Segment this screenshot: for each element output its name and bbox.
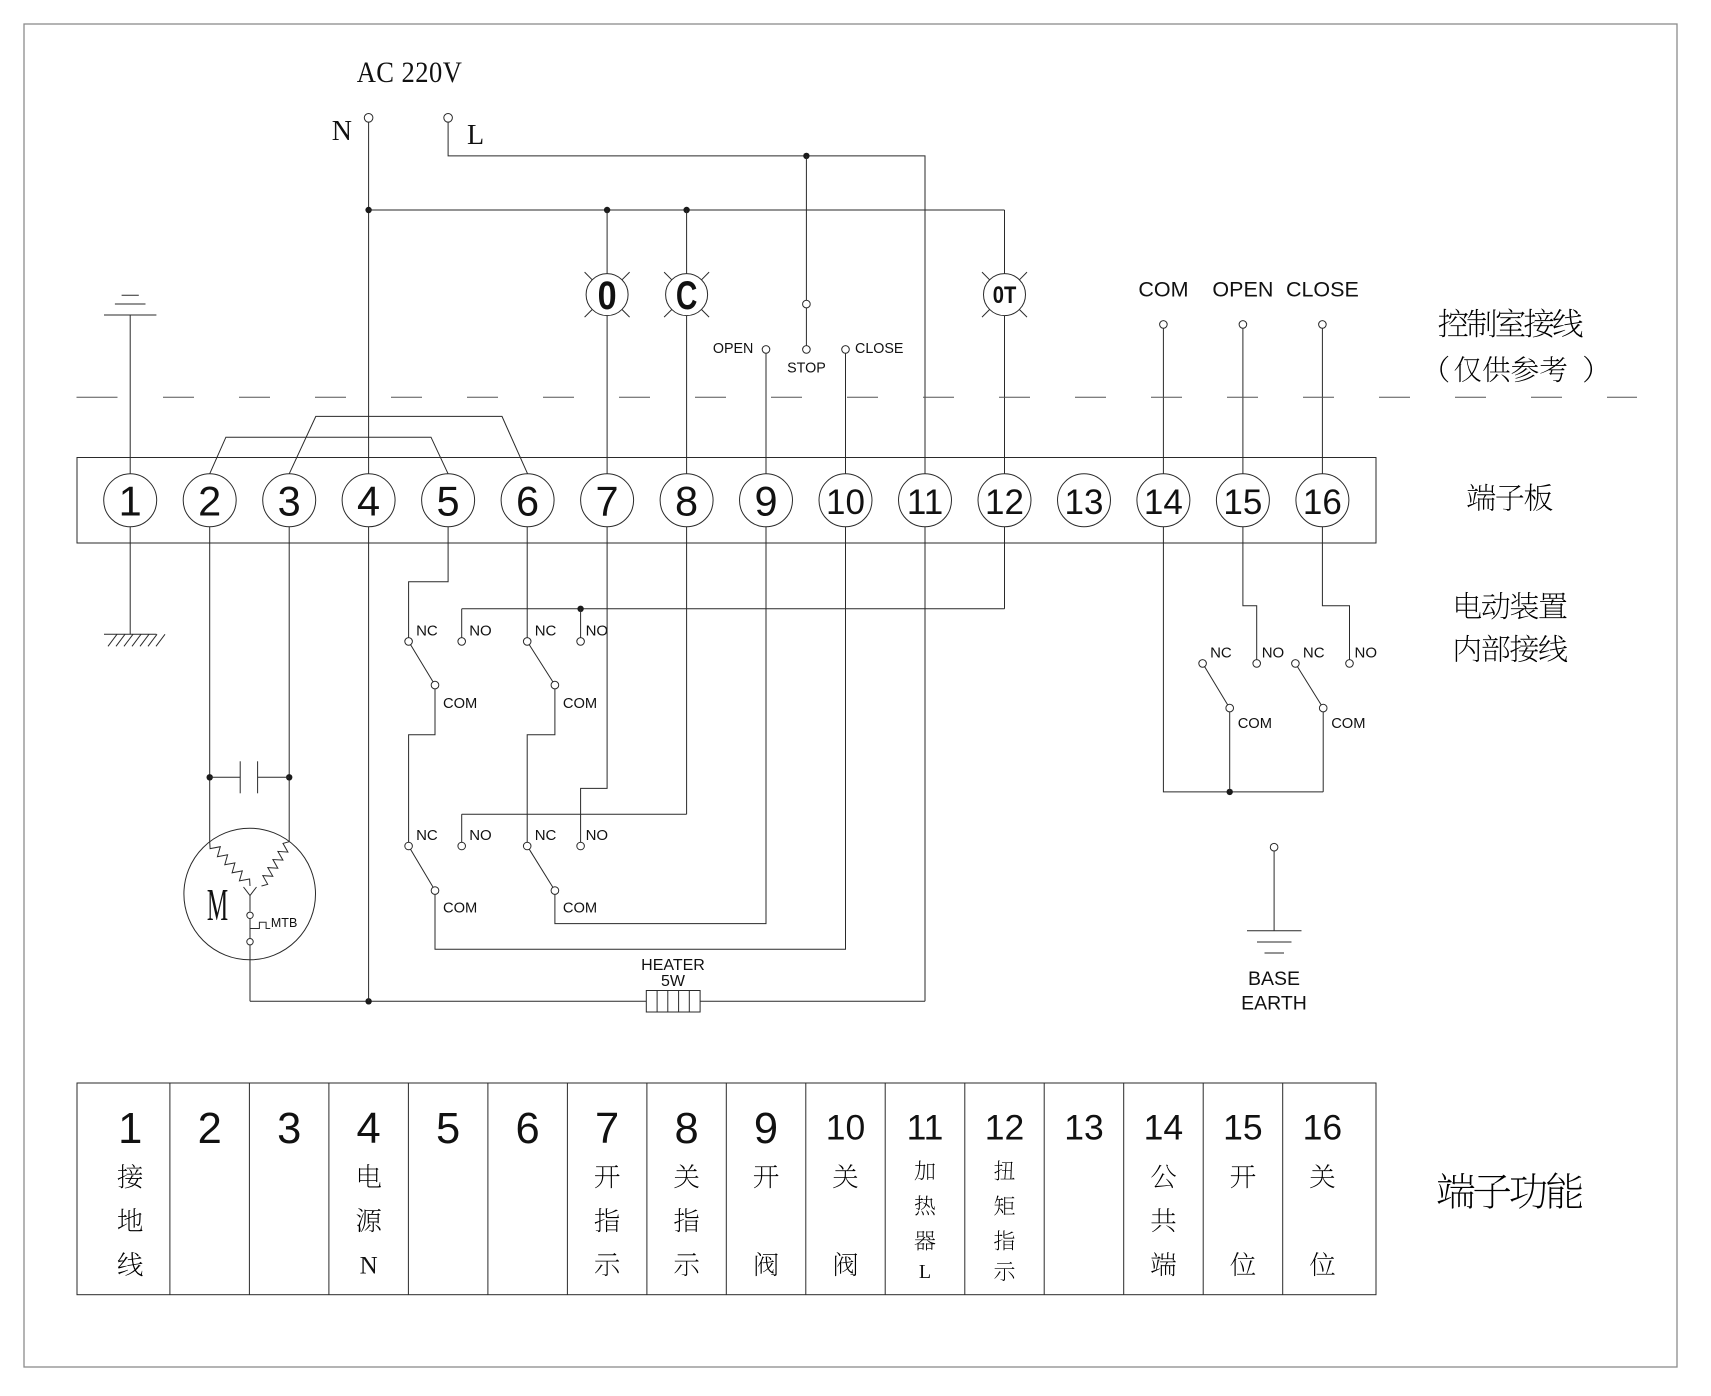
svg-text:OPEN: OPEN xyxy=(1212,278,1273,302)
svg-text:BASE: BASE xyxy=(1248,968,1300,990)
svg-text:2: 2 xyxy=(198,478,221,525)
svg-text:STOP: STOP xyxy=(787,360,826,376)
svg-text:COM: COM xyxy=(443,696,477,712)
svg-text:12: 12 xyxy=(985,1108,1025,1148)
svg-text:9: 9 xyxy=(754,1105,778,1153)
svg-text:COM: COM xyxy=(443,900,477,916)
svg-text:NC: NC xyxy=(535,623,557,640)
svg-text:2: 2 xyxy=(198,1105,222,1153)
svg-text:COM: COM xyxy=(1138,278,1188,302)
svg-text:0T: 0T xyxy=(993,282,1017,309)
svg-text:NC: NC xyxy=(1303,645,1325,662)
svg-text:EARTH: EARTH xyxy=(1241,993,1307,1015)
svg-text:11: 11 xyxy=(907,1108,944,1148)
svg-text:8: 8 xyxy=(675,478,698,525)
svg-text:6: 6 xyxy=(515,1105,539,1153)
svg-text:HEATER: HEATER xyxy=(641,957,705,974)
svg-text:L: L xyxy=(919,1261,931,1283)
svg-text:11: 11 xyxy=(907,483,943,522)
svg-text:M: M xyxy=(207,878,228,929)
svg-text:AC 220V: AC 220V xyxy=(357,57,463,90)
svg-text:5: 5 xyxy=(436,1105,460,1153)
svg-text:13: 13 xyxy=(1065,483,1104,522)
svg-text:4: 4 xyxy=(356,1105,380,1153)
svg-text:7: 7 xyxy=(595,1105,619,1153)
svg-text:13: 13 xyxy=(1064,1108,1104,1148)
svg-text:3: 3 xyxy=(277,1105,301,1153)
svg-text:NO: NO xyxy=(469,623,492,640)
svg-text:7: 7 xyxy=(596,478,619,525)
svg-text:NO: NO xyxy=(586,623,609,640)
svg-text:16: 16 xyxy=(1303,1108,1343,1148)
svg-text:N: N xyxy=(360,1253,378,1280)
svg-text:1: 1 xyxy=(118,1105,142,1153)
svg-text:4: 4 xyxy=(357,478,380,525)
svg-text:NO: NO xyxy=(1355,645,1378,662)
svg-text:MTB: MTB xyxy=(271,916,297,930)
svg-text:NC: NC xyxy=(535,827,557,844)
svg-text:NO: NO xyxy=(1262,645,1285,662)
svg-text:OPEN: OPEN xyxy=(713,341,754,357)
svg-text:14: 14 xyxy=(1144,483,1183,522)
svg-text:15: 15 xyxy=(1223,1108,1263,1148)
svg-text:3: 3 xyxy=(278,478,301,525)
svg-text:15: 15 xyxy=(1223,483,1262,522)
svg-text:10: 10 xyxy=(826,483,865,522)
svg-text:16: 16 xyxy=(1303,483,1342,522)
svg-text:5W: 5W xyxy=(661,973,686,990)
svg-text:COM: COM xyxy=(563,900,597,916)
svg-text:9: 9 xyxy=(754,478,777,525)
svg-text:NC: NC xyxy=(1210,645,1232,662)
svg-text:C: C xyxy=(676,274,698,318)
svg-text:14: 14 xyxy=(1144,1108,1184,1148)
svg-text:COM: COM xyxy=(1331,716,1365,732)
svg-text:NO: NO xyxy=(586,827,609,844)
svg-text:CLOSE: CLOSE xyxy=(1286,278,1359,302)
svg-text:8: 8 xyxy=(674,1105,698,1153)
svg-text:NC: NC xyxy=(416,623,438,640)
svg-text:10: 10 xyxy=(826,1108,866,1148)
svg-text:1: 1 xyxy=(119,478,142,525)
svg-text:COM: COM xyxy=(1238,716,1272,732)
svg-text:CLOSE: CLOSE xyxy=(855,341,903,357)
svg-text:0: 0 xyxy=(598,274,617,318)
svg-text:N: N xyxy=(332,116,352,147)
svg-text:12: 12 xyxy=(985,483,1024,522)
svg-text:NO: NO xyxy=(469,827,492,844)
svg-text:5: 5 xyxy=(437,478,460,525)
svg-text:NC: NC xyxy=(416,827,438,844)
svg-text:L: L xyxy=(467,120,484,151)
svg-text:6: 6 xyxy=(516,478,539,525)
svg-text:COM: COM xyxy=(563,696,597,712)
